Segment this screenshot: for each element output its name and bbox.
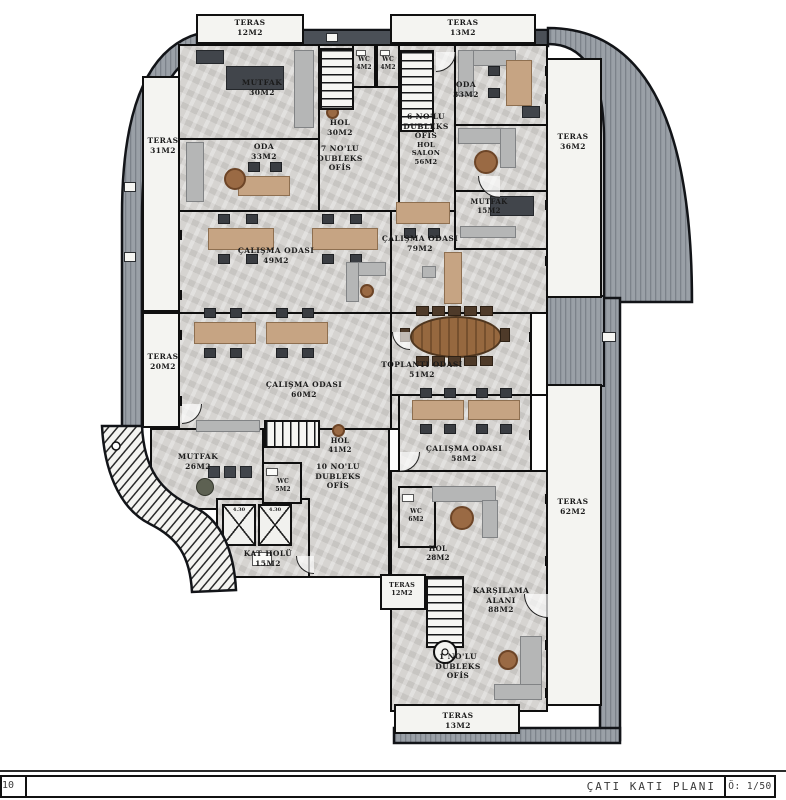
- label-teras-62: TERAS62M2: [547, 497, 599, 516]
- label-ofis-6: 6 NO'LUDUBLEKSOFİS HOLSALON56M2: [380, 112, 472, 167]
- label-hol-30: HOL30M2: [306, 118, 374, 137]
- label-toplanti-51: TOPLANTI ODASI51M2: [366, 360, 478, 379]
- label-ofis-7: 7 NO'LUDUBLEKSOFİS: [302, 144, 378, 173]
- label-teras-36: TERAS36M2: [547, 132, 599, 151]
- curved-stair: [102, 426, 236, 592]
- label-teras-12-bottom: TERAS12M2: [379, 581, 425, 598]
- plan-title: ÇATI KATI PLANI: [400, 780, 716, 793]
- label-mutfak-30: MUTFAK30M2: [214, 78, 310, 97]
- label-elevator-left: 4.30: [222, 507, 256, 513]
- label-karsilama: KARŞILAMAALANI88M2: [458, 586, 544, 615]
- label-wc-4-right: WC4M2: [377, 56, 399, 71]
- label-teras-13-top: TERAS13M2: [390, 18, 536, 37]
- label-calisma-60: ÇALIŞMA ODASI60M2: [232, 380, 376, 399]
- label-teras-13-bottom: TERAS13M2: [396, 711, 520, 730]
- label-mutfak-26: MUTFAK26M2: [156, 452, 240, 471]
- label-calisma-49: ÇALIŞMA ODASI49M2: [204, 246, 348, 265]
- label-wc-4-left: WC4M2: [353, 56, 375, 71]
- label-teras-31: TERAS31M2: [142, 136, 184, 155]
- stair-post: [112, 442, 120, 450]
- label-wc-6: WC6M2: [399, 508, 433, 523]
- label-calisma-58: ÇALIŞMA ODASI58M2: [406, 444, 522, 463]
- label-hol-41: HOL41M2: [318, 437, 362, 455]
- floor-plan-canvas: TERAS12M2 TERAS13M2 MUTFAK30M2 WC4M2 WC4…: [0, 0, 786, 800]
- label-ofis-1: 1 NO'LUDUBLEKSOFİS: [416, 652, 500, 681]
- label-ofis-10: 10 NO'LUDUBLEKSOFİS: [302, 462, 374, 491]
- label-teras-12-top: TERAS12M2: [196, 18, 304, 37]
- label-teras-20: TERAS20M2: [142, 352, 184, 371]
- label-oda-33-right: ODA33M2: [430, 80, 502, 99]
- label-hol-28: HOL28M2: [410, 545, 466, 563]
- label-oda-33-left: ODA33M2: [218, 142, 310, 161]
- label-mutfak-15: MUTFAK15M2: [458, 198, 520, 216]
- scale-label: Ö: 1/50: [726, 781, 774, 792]
- label-wc-5: WC5M2: [266, 478, 300, 493]
- label-elevator-right: 4.30: [258, 507, 292, 513]
- label-calisma-79: ÇALIŞMA ODASI79M2: [368, 234, 472, 253]
- sheet-number: 10: [2, 780, 24, 791]
- label-kat-holu: KAT HOLÜ15M2: [226, 549, 310, 568]
